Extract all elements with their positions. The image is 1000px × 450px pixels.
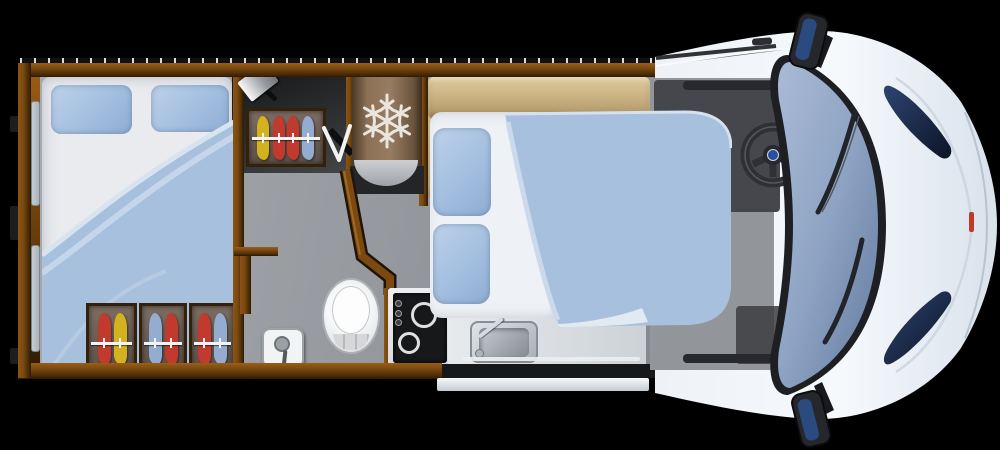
hob-knob	[395, 310, 402, 317]
door-opening	[442, 364, 656, 378]
hob-knob	[395, 300, 402, 307]
hanger-hook	[119, 338, 121, 348]
hanger-hook	[307, 133, 309, 143]
shower-control	[262, 328, 304, 368]
hanger-hook	[278, 133, 280, 143]
hob-knob	[395, 319, 402, 326]
shower-partition-post	[240, 256, 251, 314]
door-swing-marker	[320, 120, 356, 166]
hanging-rail	[194, 342, 231, 345]
hanger-hook	[170, 338, 172, 348]
rear-window-pane-bottom	[31, 245, 40, 352]
toilet-seat	[332, 286, 370, 334]
hanger-hook	[262, 133, 264, 143]
shower-mixer-knob	[274, 336, 290, 352]
main-bed-duvet	[430, 110, 732, 360]
hanging-rail	[91, 342, 132, 345]
hanger-hook	[203, 338, 205, 348]
bottom-wall	[18, 363, 442, 379]
wardrobe-top	[246, 108, 326, 167]
toilet	[322, 278, 380, 354]
roof-antenna	[752, 37, 772, 45]
hanger-hook	[219, 338, 221, 348]
steering-badge	[768, 150, 779, 161]
shower-partition-shelf	[234, 247, 278, 256]
entry-step	[437, 378, 649, 391]
hanger-hook	[103, 338, 105, 348]
top-wall	[18, 63, 658, 77]
burner-small	[398, 332, 420, 354]
snowflake-icon	[356, 90, 418, 152]
hanger-hook	[292, 133, 294, 143]
hanger-hook	[154, 338, 156, 348]
motorhome-floorplan	[0, 0, 1000, 450]
left-wall	[18, 63, 31, 378]
front-badge	[969, 212, 974, 232]
hanging-rail	[144, 342, 182, 345]
rear-window-pane-top	[31, 101, 40, 206]
bathroom-partition	[230, 165, 410, 305]
